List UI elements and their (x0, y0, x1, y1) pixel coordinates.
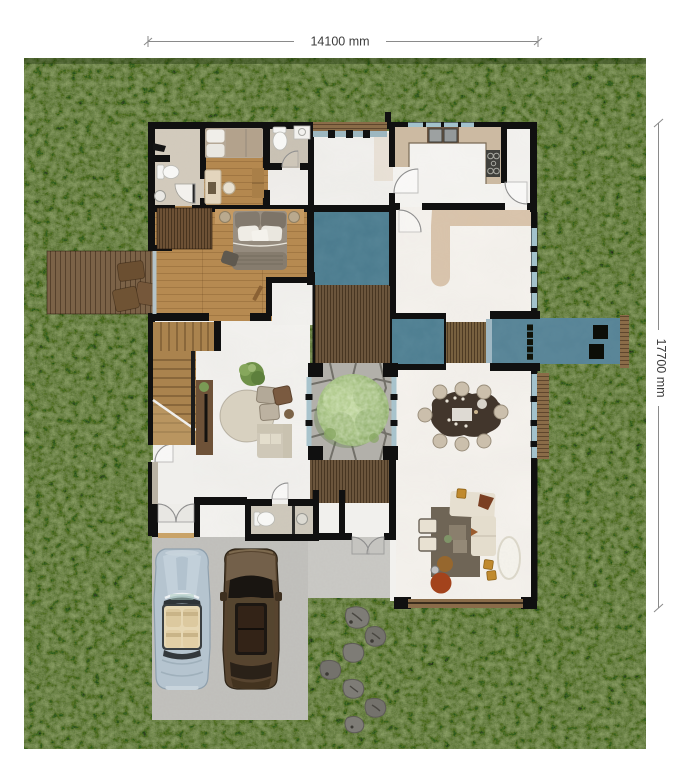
svg-text:17700 mm: 17700 mm (654, 338, 668, 397)
svg-text:14100 mm: 14100 mm (310, 35, 369, 49)
